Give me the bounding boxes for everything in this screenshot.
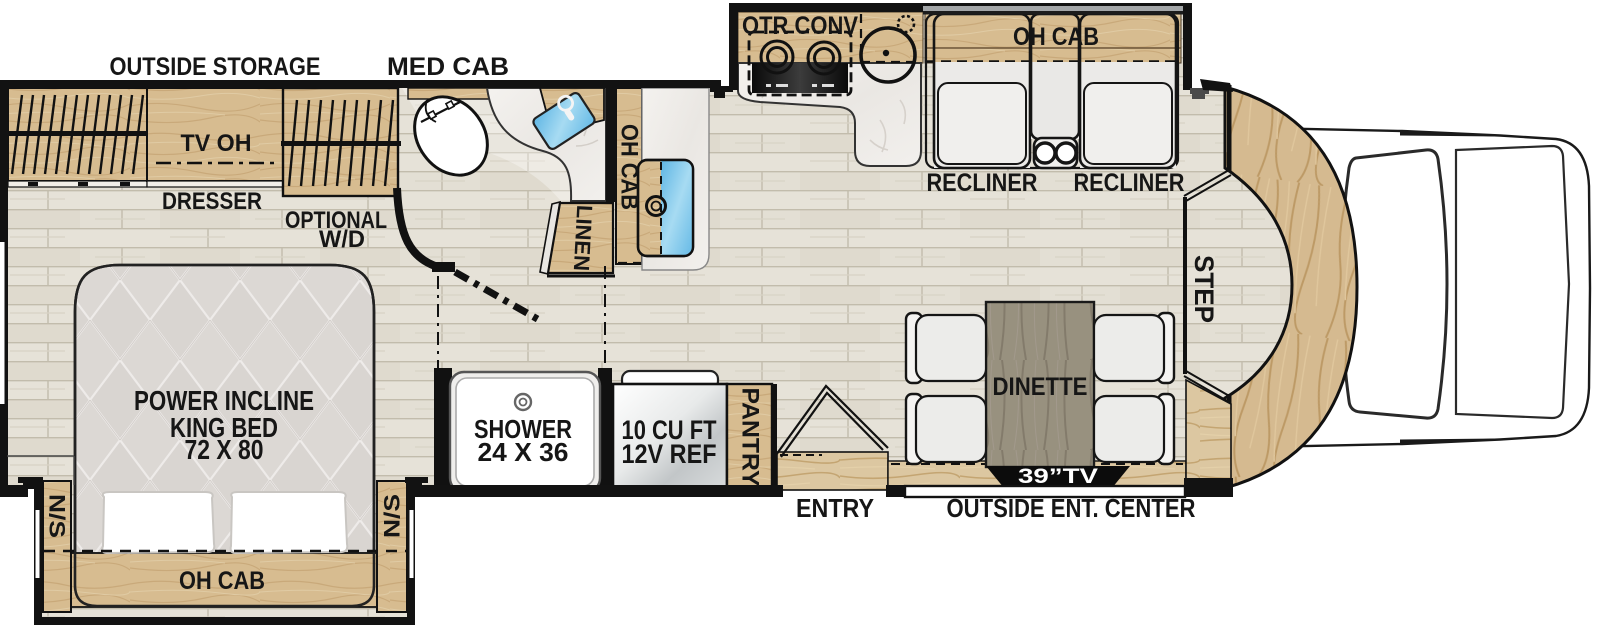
svg-text:OUTSIDE ENT. CENTER: OUTSIDE ENT. CENTER <box>947 493 1196 523</box>
svg-text:DINETTE: DINETTE <box>993 373 1088 401</box>
svg-text:RECLINER: RECLINER <box>927 169 1038 197</box>
svg-text:W/D: W/D <box>319 226 365 253</box>
svg-text:OH CAB: OH CAB <box>1013 23 1099 51</box>
svg-text:12V REF: 12V REF <box>622 439 717 469</box>
svg-text:STEP: STEP <box>1189 255 1219 323</box>
svg-text:ENTRY: ENTRY <box>796 493 874 523</box>
svg-text:LINEN: LINEN <box>569 204 597 271</box>
svg-text:39”TV: 39”TV <box>1018 465 1098 488</box>
svg-text:N/S: N/S <box>380 494 405 538</box>
svg-text:DRESSER: DRESSER <box>162 188 262 215</box>
svg-text:TV OH: TV OH <box>181 130 252 157</box>
svg-text:OH CAB: OH CAB <box>616 124 643 210</box>
svg-text:MED CAB: MED CAB <box>387 53 509 81</box>
svg-text:RECLINER: RECLINER <box>1074 169 1185 197</box>
svg-text:72 X 80: 72 X 80 <box>185 434 264 465</box>
svg-text:N/S: N/S <box>45 494 70 538</box>
svg-text:24 X 36: 24 X 36 <box>478 437 569 467</box>
svg-text:OUTSIDE STORAGE: OUTSIDE STORAGE <box>110 53 321 81</box>
svg-text:PANTRY: PANTRY <box>737 388 764 487</box>
svg-text:OTR CONV: OTR CONV <box>742 12 858 40</box>
svg-text:OH CAB: OH CAB <box>179 567 265 595</box>
